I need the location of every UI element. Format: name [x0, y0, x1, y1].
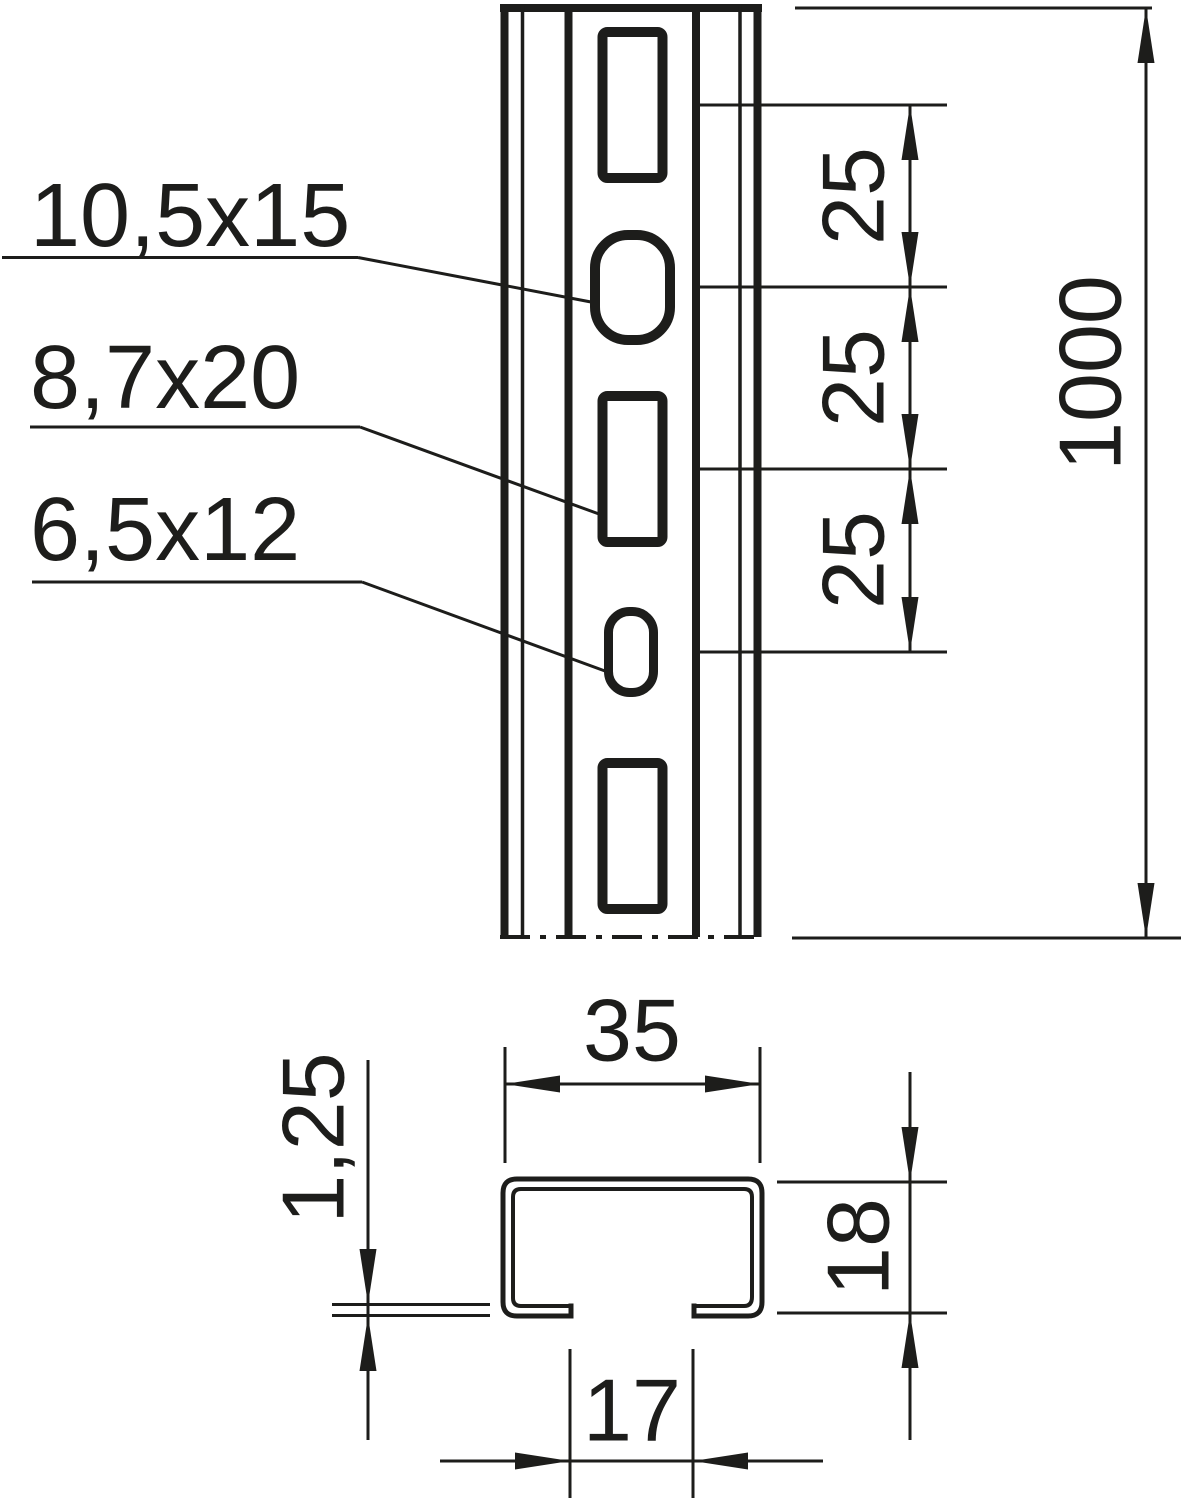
thickness-dimension-label: 1,25 — [264, 1052, 363, 1223]
arrowhead — [902, 469, 919, 524]
cross-section-view — [503, 1179, 762, 1319]
length-dimension-label: 1000 — [1041, 275, 1140, 471]
pitch-dimension-label-2: 25 — [804, 329, 903, 427]
arrowhead — [902, 287, 919, 342]
leader-line-10-5x15 — [358, 258, 591, 303]
height-dimension: 18 — [777, 1072, 947, 1440]
arrowhead — [902, 1313, 919, 1368]
rail-hole-pattern — [595, 32, 670, 909]
width-dimension-label: 35 — [583, 981, 681, 1080]
arrowhead — [1138, 8, 1155, 63]
arrowhead — [515, 1453, 570, 1470]
hole-label-10-5x15: 10,5x15 — [30, 166, 350, 266]
hole-slot-rect-3 — [603, 763, 663, 909]
height-dimension-label: 18 — [809, 1198, 908, 1296]
pitch-dimension-label-3: 25 — [804, 511, 903, 609]
leader-line-8-7x20 — [360, 427, 599, 514]
arrowhead — [902, 105, 919, 160]
hole-obround-medium — [595, 235, 670, 340]
technical-drawing-page: 10,5x15 8,7x20 6,5x12 25 25 25 1000 — [0, 0, 1183, 1500]
arrowhead — [902, 1127, 919, 1182]
pitch-dimension-chain: 25 25 25 — [700, 105, 947, 652]
arrowhead — [693, 1453, 748, 1470]
arrowhead — [705, 1076, 760, 1093]
opening-dimension-label: 17 — [583, 1361, 681, 1460]
profile-outer-contour — [503, 1179, 762, 1316]
hole-callout-leaders — [2, 258, 605, 672]
width-dimension: 35 — [505, 981, 760, 1164]
profile-inner-contour — [513, 1189, 752, 1306]
thickness-dimension: 1,25 — [264, 1052, 491, 1440]
arrowhead — [360, 1316, 377, 1371]
arrowhead — [902, 597, 919, 652]
hole-label-8-7x20: 8,7x20 — [30, 328, 300, 428]
hole-slot-rect-2 — [603, 396, 663, 542]
hole-obround-small — [609, 612, 654, 693]
arrowhead — [505, 1076, 560, 1093]
arrowhead — [360, 1249, 377, 1304]
hole-label-6-5x12: 6,5x12 — [30, 480, 300, 580]
arrowhead — [1138, 883, 1155, 938]
hole-slot-rect-1 — [603, 32, 663, 178]
pitch-dimension-label-1: 25 — [804, 147, 903, 245]
arrowhead — [902, 414, 919, 469]
arrowhead — [902, 232, 919, 287]
opening-dimension: 17 — [440, 1349, 823, 1498]
rail-dimension-drawing: 10,5x15 8,7x20 6,5x12 25 25 25 1000 — [0, 0, 1183, 1500]
